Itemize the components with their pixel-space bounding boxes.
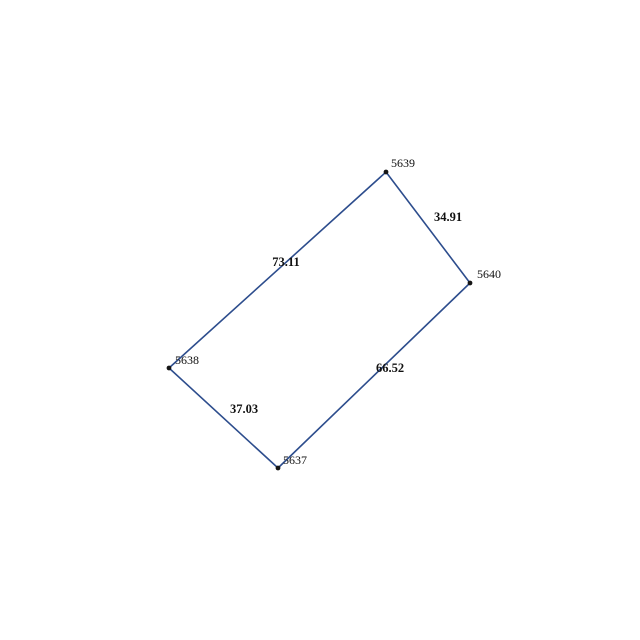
vertex-point-5638	[167, 366, 172, 371]
vertex-point-5639	[384, 170, 389, 175]
edge-length-label: 73.11	[272, 255, 299, 269]
vertex-point-5640	[468, 281, 473, 286]
edge-length-label: 37.03	[230, 402, 258, 416]
edge-length-label: 66.52	[376, 361, 404, 375]
boundary-line-5639-5640	[386, 172, 470, 283]
parcel-sketch-canvas: 37.0373.1134.9166.525637563856395640	[0, 0, 640, 640]
edge-length-label: 34.91	[434, 210, 462, 224]
vertex-label-5639: 5639	[391, 156, 415, 170]
boundary-line-5638-5639	[169, 172, 386, 368]
vertex-label-5637: 5637	[283, 453, 307, 467]
boundary-line-5637-5638	[169, 368, 278, 468]
sketch-stage: 37.0373.1134.9166.525637563856395640	[0, 0, 640, 640]
vertex-point-5637	[276, 466, 281, 471]
vertex-label-5640: 5640	[477, 267, 501, 281]
boundary-line-5640-5637	[278, 283, 470, 468]
vertex-label-5638: 5638	[175, 353, 199, 367]
